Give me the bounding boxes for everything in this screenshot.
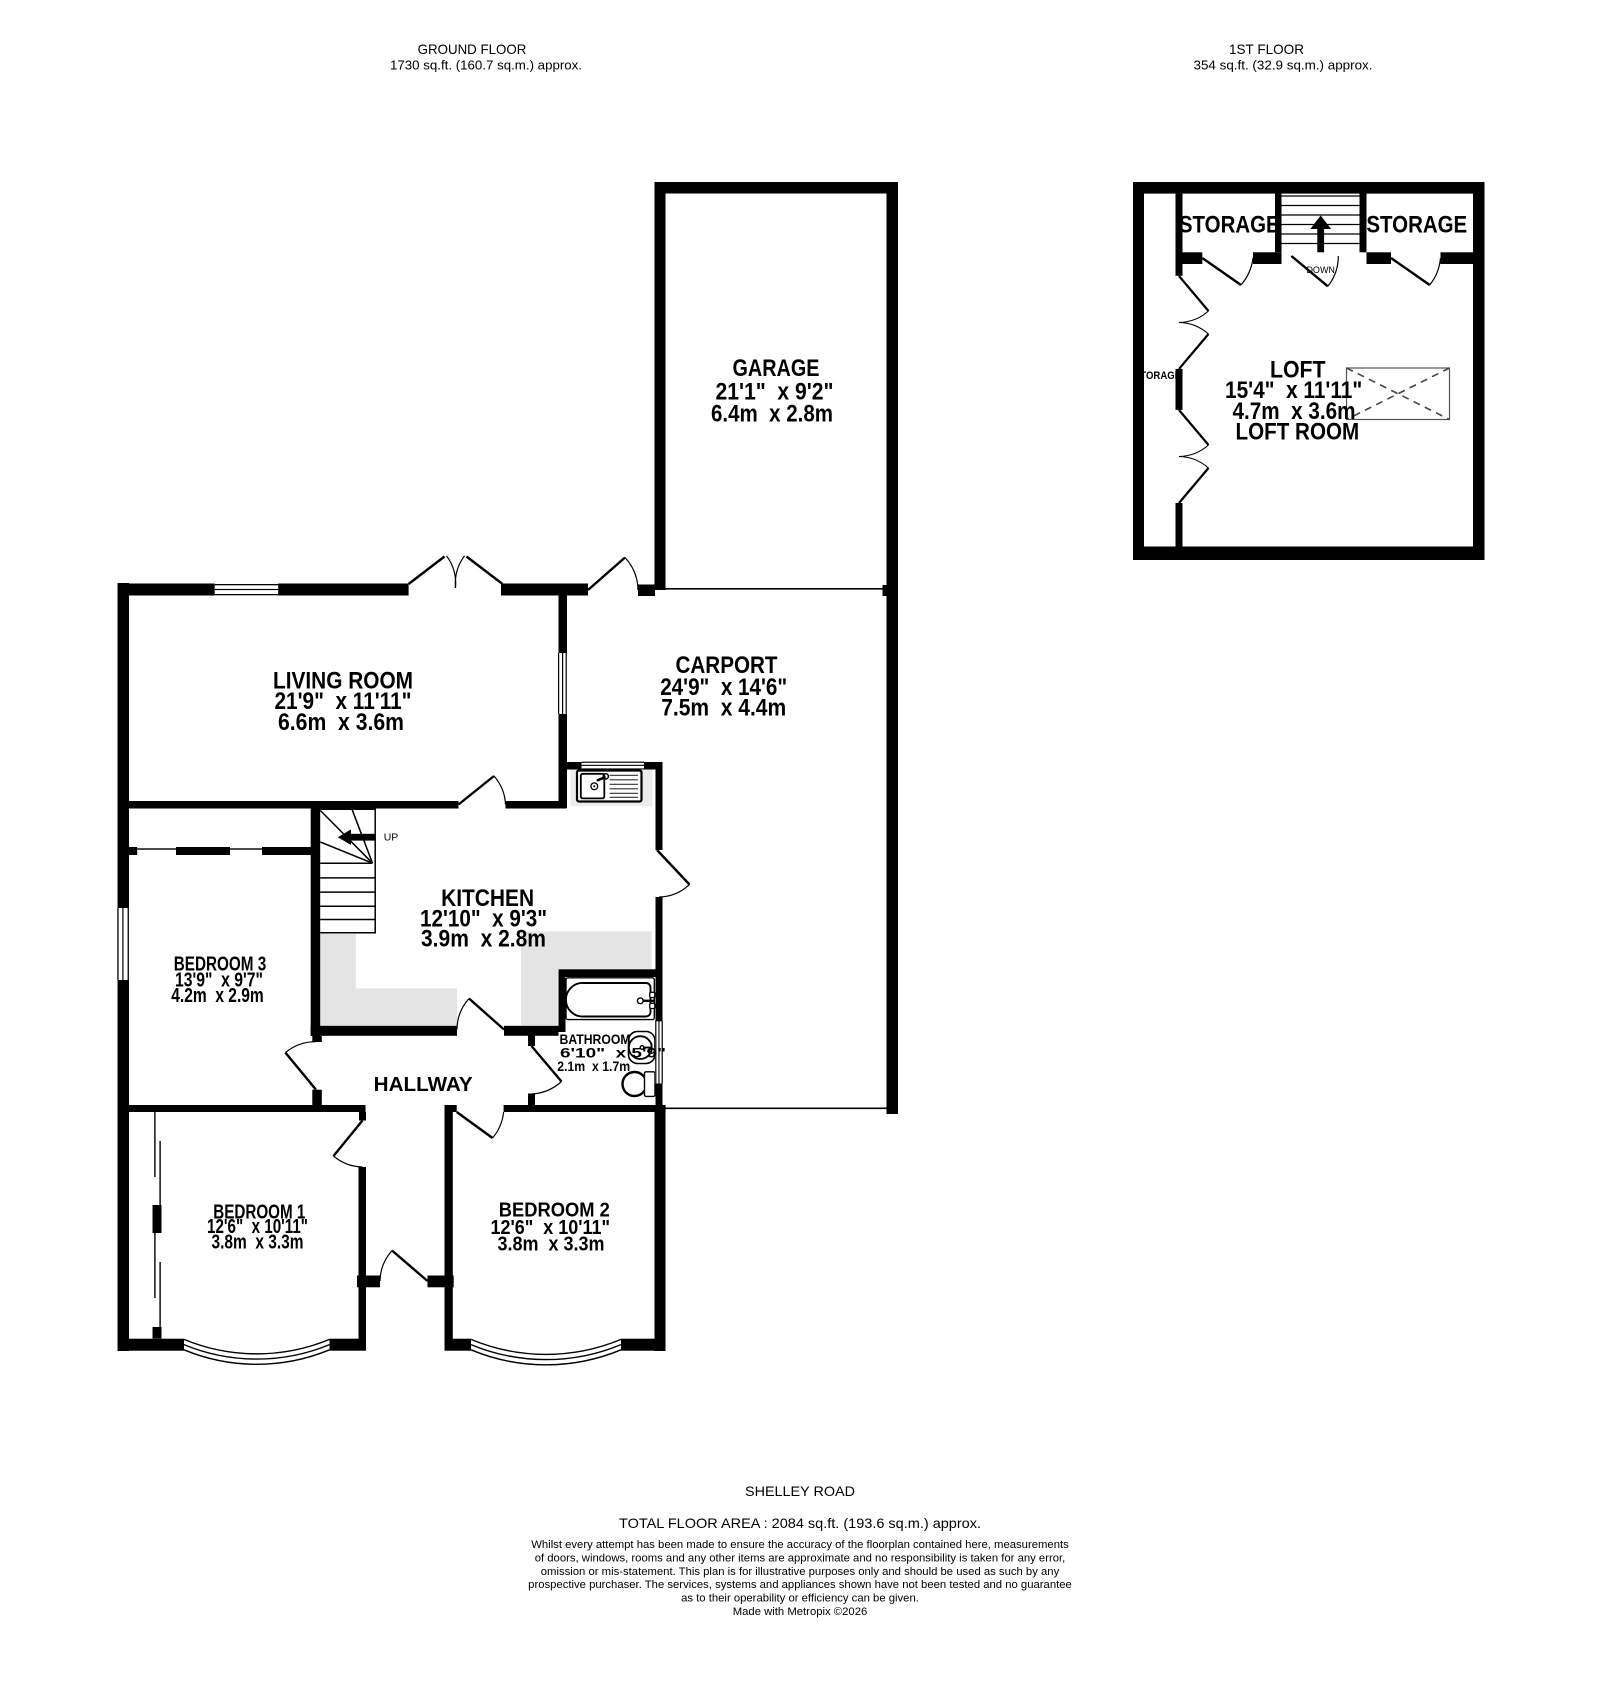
svg-text:4.2m x 2.9m: 4.2m x 2.9m — [171, 984, 264, 1007]
svg-text:STORAGE: STORAGE — [1179, 211, 1280, 238]
svg-text:2.1m x 1.7m: 2.1m x 1.7m — [557, 1059, 630, 1074]
svg-text:Whilst every attempt has been: Whilst every attempt has been made to en… — [531, 1539, 1069, 1551]
svg-text:SHELLEY ROAD: SHELLEY ROAD — [745, 1483, 855, 1499]
svg-text:UP: UP — [384, 832, 399, 844]
svg-text:omission or mis-statement. Thi: omission or mis-statement. This plan is … — [541, 1566, 1060, 1578]
svg-text:3.8m x 3.3m: 3.8m x 3.3m — [498, 1233, 605, 1256]
svg-text:HALLWAY: HALLWAY — [374, 1073, 473, 1096]
svg-text:TOTAL FLOOR AREA : 2084 sq.ft.: TOTAL FLOOR AREA : 2084 sq.ft. (193.6 sq… — [619, 1515, 981, 1531]
svg-text:STORAGE: STORAGE — [1366, 211, 1467, 238]
svg-text:354 sq.ft. (32.9 sq.m.) approx: 354 sq.ft. (32.9 sq.m.) approx. — [1194, 58, 1373, 73]
svg-text:6.6m x 3.6m: 6.6m x 3.6m — [278, 709, 404, 736]
svg-text:Made with Metropix ©2026: Made with Metropix ©2026 — [733, 1606, 868, 1618]
svg-text:1730 sq.ft. (160.7 sq.m.) appr: 1730 sq.ft. (160.7 sq.m.) approx. — [390, 58, 582, 73]
svg-text:7.5m x 4.4m: 7.5m x 4.4m — [661, 695, 786, 722]
svg-text:as to their operability or eff: as to their operability or efficiency ca… — [681, 1593, 919, 1605]
svg-text:1ST FLOOR: 1ST FLOOR — [1229, 41, 1304, 57]
svg-text:LOFT ROOM: LOFT ROOM — [1236, 419, 1360, 446]
svg-text:3.9m x 2.8m: 3.9m x 2.8m — [421, 926, 546, 953]
svg-text:3.8m x 3.3m: 3.8m x 3.3m — [212, 1230, 304, 1253]
svg-text:GROUND FLOOR: GROUND FLOOR — [418, 41, 527, 57]
svg-text:of doors, windows, rooms and a: of doors, windows, rooms and any other i… — [535, 1552, 1066, 1564]
svg-text:6.4m x 2.8m: 6.4m x 2.8m — [711, 401, 833, 428]
svg-text:prospective purchaser. The ser: prospective purchaser. The services, sys… — [528, 1579, 1072, 1591]
